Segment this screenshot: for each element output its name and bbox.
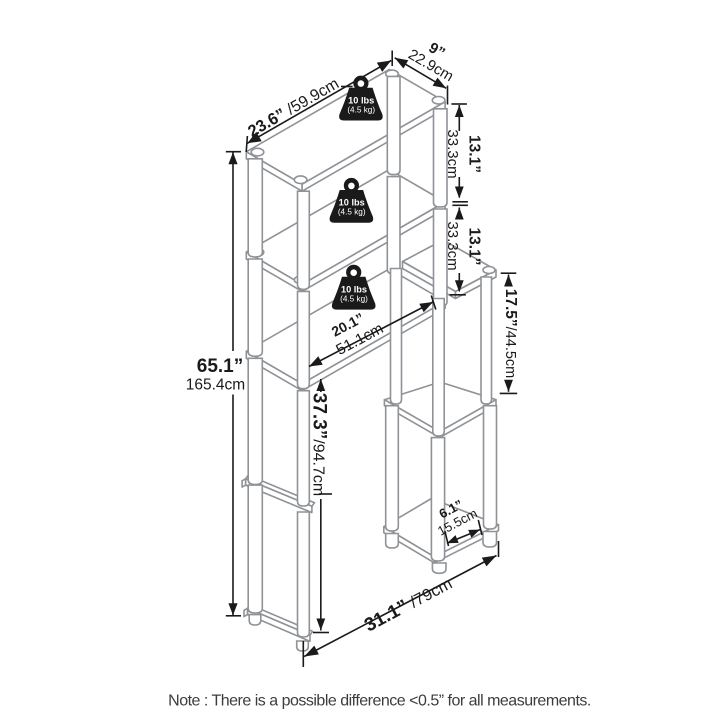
svg-text:10 lbs: 10 lbs bbox=[341, 285, 367, 295]
svg-text:10 lbs: 10 lbs bbox=[348, 95, 374, 105]
svg-text:37.3”/94.7cm: 37.3”/94.7cm bbox=[309, 393, 330, 496]
svg-text:13.1”: 13.1” bbox=[466, 228, 483, 266]
svg-text:33.3cm: 33.3cm bbox=[444, 129, 461, 178]
svg-text:10 lbs: 10 lbs bbox=[339, 198, 365, 208]
svg-text:Note : There is a possible dif: Note : There is a possible difference <0… bbox=[168, 693, 591, 710]
svg-text:(4.5 kg): (4.5 kg) bbox=[347, 105, 375, 114]
svg-text:17.5”/44.5cm: 17.5”/44.5cm bbox=[502, 289, 519, 379]
svg-text:(4.5 kg): (4.5 kg) bbox=[340, 295, 368, 304]
svg-text:33.3cm: 33.3cm bbox=[444, 221, 461, 270]
svg-text:165.4cm: 165.4cm bbox=[186, 377, 245, 394]
svg-text:(4.5 kg): (4.5 kg) bbox=[338, 208, 366, 217]
svg-text:13.1”: 13.1” bbox=[466, 135, 483, 173]
svg-text:65.1”: 65.1” bbox=[197, 356, 243, 377]
